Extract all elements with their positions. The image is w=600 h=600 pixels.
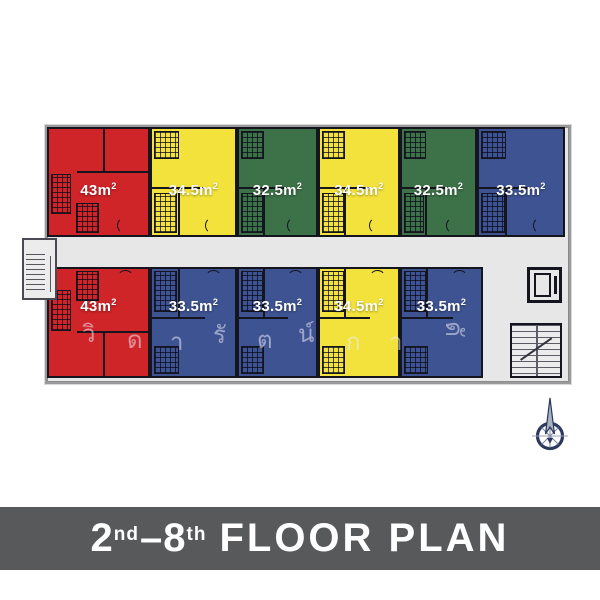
floor-plan: 43m2 34.5m2 32.5m2	[45, 125, 571, 384]
watermark-letter: ด	[127, 329, 143, 353]
unit-top-3: 32.5m2	[237, 127, 318, 237]
compass-north-icon	[527, 396, 573, 462]
door-arc	[117, 217, 134, 234]
interior-wall	[103, 333, 105, 376]
page: 43m2 34.5m2 32.5m2	[0, 0, 600, 600]
watermark-letter: ก	[346, 331, 361, 355]
balcony-tile-area	[322, 346, 345, 374]
watermark-letter: ต	[257, 329, 273, 353]
banner-floor-end: 8	[163, 516, 186, 561]
balcony-tile-area	[404, 131, 426, 159]
unit-area-label: 33.5m2	[402, 297, 481, 315]
compass-north-svg	[527, 396, 573, 462]
interior-wall	[239, 317, 288, 319]
unit-top-6: 33.5m2	[477, 127, 565, 237]
unit-bottom-1: 43m2	[47, 267, 150, 378]
interior-wall	[152, 317, 205, 319]
door-arc	[451, 270, 468, 287]
door-arc	[446, 217, 463, 234]
balcony-tile-area	[404, 346, 428, 374]
elevator-shaft	[527, 267, 562, 303]
unit-top-1: 43m2	[47, 127, 150, 237]
stair-rail	[50, 256, 52, 292]
interior-wall	[77, 171, 148, 173]
unit-area-label: 33.5m2	[479, 181, 563, 199]
banner-dash: –	[140, 516, 163, 561]
watermark-letter: ดั	[441, 321, 465, 337]
interior-wall	[402, 317, 453, 319]
stair-divider	[536, 325, 538, 376]
unit-bottom-4: 34.5m2	[318, 267, 400, 378]
unit-top-5: 32.5m2	[400, 127, 477, 237]
floor-plan-banner: 2nd–8thFLOOR PLAN	[0, 507, 600, 570]
banner-ordinal-nd: nd	[114, 524, 139, 546]
door-arc	[117, 270, 134, 287]
unit-area-label: 34.5m2	[320, 297, 398, 315]
interior-wall	[320, 317, 370, 319]
watermark-letter: น์	[298, 323, 314, 347]
unit-top-4: 34.5m2	[318, 127, 400, 237]
balcony-tile-area	[154, 131, 179, 159]
door-arc	[369, 217, 386, 234]
staircase-left	[22, 238, 57, 300]
bathroom-tile-area	[76, 203, 100, 233]
banner-title-text: FLOOR PLAN	[219, 516, 509, 561]
balcony-tile-area	[241, 131, 264, 159]
unit-area-label: 34.5m2	[152, 181, 235, 199]
floor-plan-inner: 43m2 34.5m2 32.5m2	[47, 127, 569, 382]
watermark-letter: รั	[213, 324, 226, 348]
elevator-cab	[534, 273, 551, 297]
door-arc	[287, 217, 304, 234]
stair-treads	[26, 254, 45, 294]
door-arc	[205, 217, 222, 234]
banner-floor-start: 2	[91, 516, 114, 561]
watermark-letter: า	[170, 331, 183, 355]
unit-area-label: 32.5m2	[402, 181, 475, 199]
door-arc	[369, 270, 386, 287]
staircase-right	[510, 323, 562, 378]
watermark-letter: า	[389, 331, 402, 355]
door-arc	[533, 217, 550, 234]
door-arc	[205, 270, 222, 287]
unit-area-label: 32.5m2	[239, 181, 316, 199]
unit-area-label: 43m2	[49, 181, 148, 199]
unit-area-label: 43m2	[49, 297, 148, 315]
unit-top-2: 34.5m2	[150, 127, 237, 237]
elevator-counterweight	[554, 276, 557, 294]
interior-wall	[103, 129, 105, 171]
balcony-tile-area	[481, 131, 506, 159]
unit-area-label: 33.5m2	[239, 297, 316, 315]
watermark-letter: วิ	[82, 323, 95, 347]
unit-area-label: 33.5m2	[152, 297, 235, 315]
banner-ordinal-th: th	[187, 524, 207, 546]
door-arc	[287, 270, 304, 287]
balcony-tile-area	[322, 131, 345, 159]
unit-area-label: 34.5m2	[320, 181, 398, 199]
